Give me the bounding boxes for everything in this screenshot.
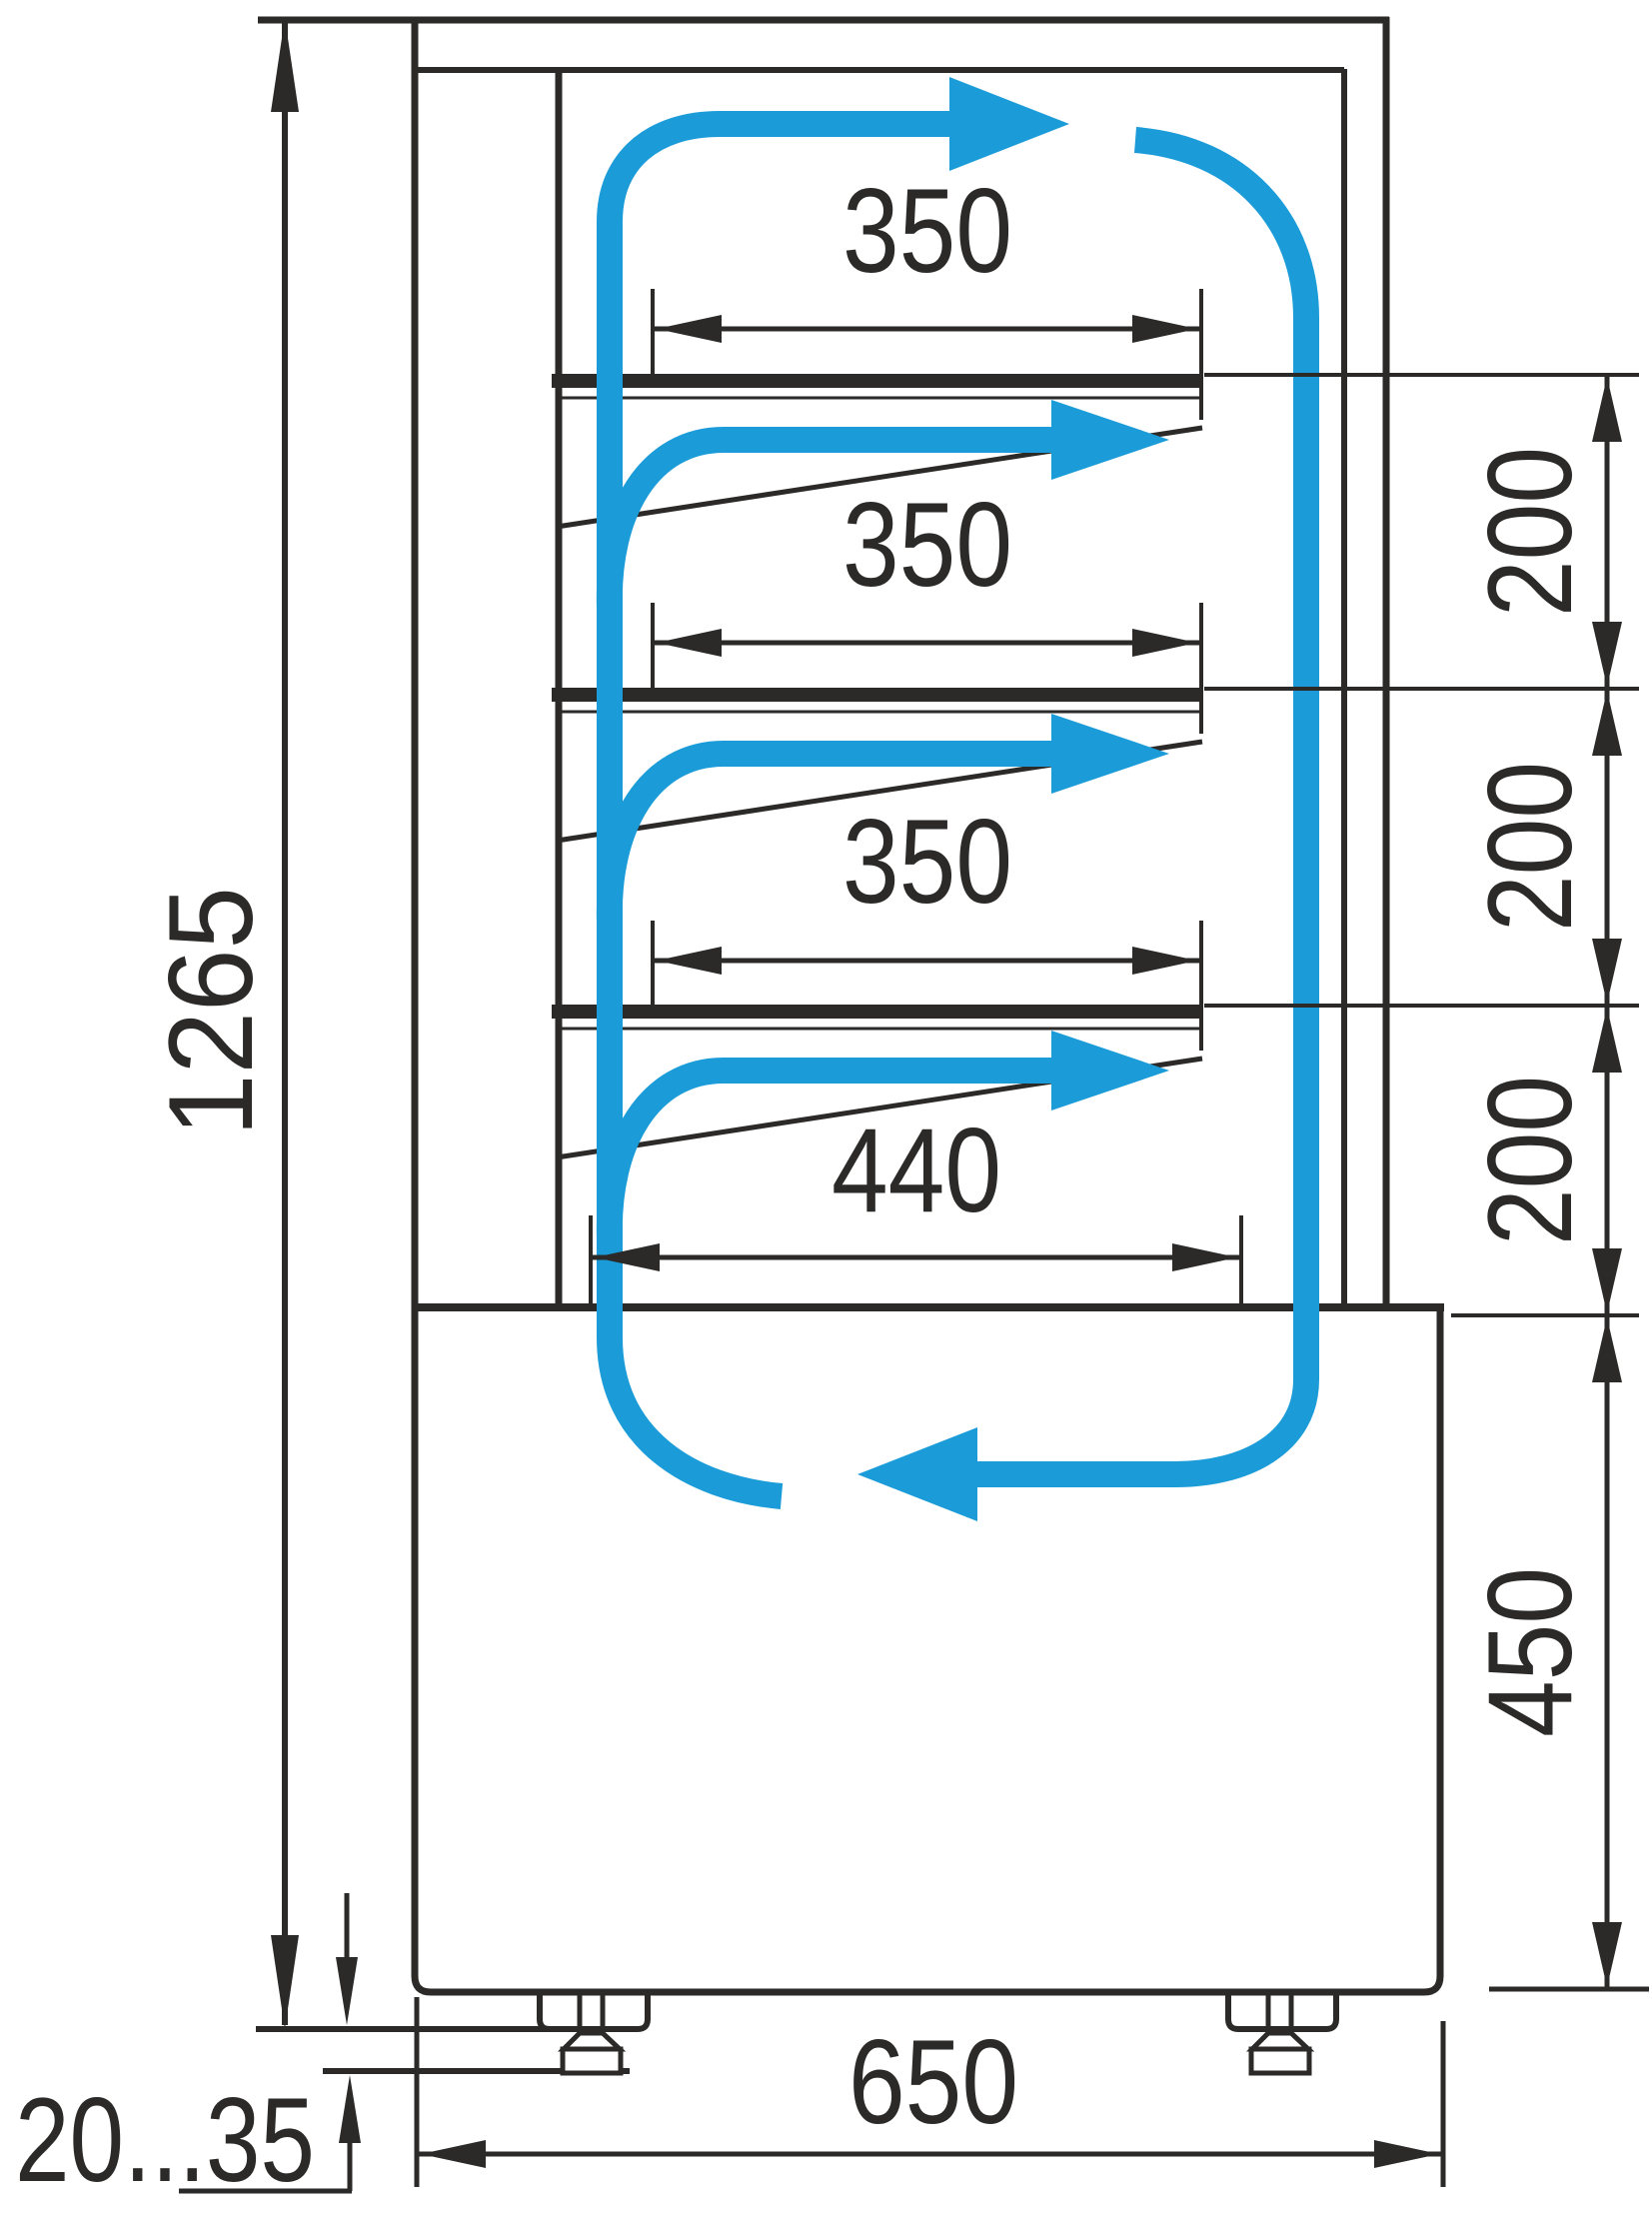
dim-200-2-label: 200: [1463, 762, 1597, 932]
foot-left-mount: [540, 1992, 648, 2029]
foot-right-mount: [1228, 1992, 1336, 2029]
dim-2035-arrow-up: [339, 2075, 361, 2143]
base-body-outline: [415, 1303, 1440, 1992]
dim-2035-label: 20...35: [15, 2073, 315, 2207]
dimension-right-chain: 200 200 200 450: [1204, 375, 1649, 1989]
dim-1265-arrow-up: [271, 18, 299, 112]
dim-650-arrow-left: [421, 2140, 486, 2168]
foot-right: [1228, 1992, 1336, 2073]
chain-arrow-up-1: [1592, 377, 1622, 442]
dim-440-label: 440: [831, 1104, 1001, 1237]
drawing-canvas: 1265 350 350 350 440: [0, 0, 1652, 2214]
airflow-return-arrowhead: [857, 1427, 977, 1521]
dim-350-3-arrow-right: [1132, 947, 1197, 975]
airflow-shelf3-arrowhead: [1051, 1031, 1169, 1110]
shelf-3: [552, 1005, 1201, 1019]
dim-350-3-label: 350: [842, 795, 1012, 929]
dim-200-3-label: 200: [1463, 1076, 1597, 1245]
dim-350-2-arrow-right: [1132, 629, 1197, 657]
dim-2035-arrow-down: [336, 1957, 358, 2025]
dim-350-3-arrow-left: [657, 947, 722, 975]
foot-right-pad: [1251, 2049, 1309, 2073]
chain-arrow-up-4: [1592, 1317, 1622, 1382]
dim-200-1-label: 200: [1463, 447, 1597, 617]
dim-450-label: 450: [1463, 1567, 1597, 1737]
display-case-section-diagram: 1265 350 350 350 440: [0, 0, 1652, 2214]
chain-arrow-down-2: [1592, 939, 1622, 1004]
foot-left-pad: [563, 2049, 621, 2073]
chain-arrow-down-1: [1592, 622, 1622, 687]
shelf-1: [552, 374, 1201, 388]
chain-arrow-up-2: [1592, 691, 1622, 756]
foot-left: [540, 1992, 648, 2073]
dim-650-label: 650: [848, 2015, 1018, 2149]
dim-1265-label: 1265: [144, 887, 278, 1136]
dim-350-1-arrow-right: [1132, 315, 1197, 343]
dim-1265-arrow-down: [271, 1935, 299, 2029]
chain-arrow-up-3: [1592, 1008, 1622, 1073]
dim-440-arrow-right: [1172, 1243, 1237, 1271]
dim-350-2-label: 350: [842, 478, 1012, 612]
dimension-bottom-shelf-depth: 440: [591, 1104, 1241, 1311]
dim-650-arrow-right: [1374, 2140, 1439, 2168]
airflow-top-arrowhead: [949, 77, 1069, 171]
shelf-2: [552, 688, 1201, 702]
dimension-foot-adjustment: 20...35: [15, 1893, 630, 2207]
airflow-shelf2-arrowhead: [1051, 714, 1169, 794]
airflow-shelf1-arrowhead: [1051, 400, 1169, 480]
dim-350-1-arrow-left: [657, 315, 722, 343]
dimension-overall-height: 1265: [144, 18, 299, 2029]
chain-arrow-down-3: [1592, 1248, 1622, 1313]
dim-350-2-arrow-left: [657, 629, 722, 657]
chain-arrow-down-4: [1592, 1922, 1622, 1987]
dim-350-1-label: 350: [842, 164, 1012, 298]
